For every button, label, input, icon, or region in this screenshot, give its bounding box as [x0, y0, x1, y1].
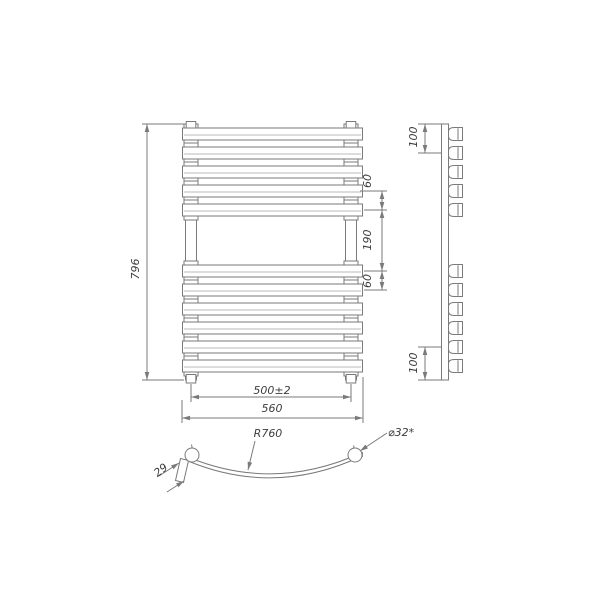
left-collector-section	[185, 448, 199, 462]
dim-label-overall-width: 560	[262, 402, 283, 415]
collector-top-cap	[346, 122, 356, 129]
dim-label-bar-bend-radius: R760	[254, 427, 283, 440]
dim-label-collector-spacing: 500±2	[253, 384, 290, 397]
right-collector-tick	[354, 446, 355, 449]
front-bar	[183, 147, 363, 159]
side-bar-end	[449, 265, 463, 278]
dim-label-middle-gap: 190	[361, 230, 374, 251]
right-collector-section	[348, 448, 362, 462]
side-bar-end	[449, 185, 463, 198]
side-bar-end	[449, 341, 463, 354]
front-bar	[183, 204, 363, 216]
collector-bottom-cap	[186, 375, 196, 384]
leader-line-diameter	[360, 433, 387, 451]
dim-label-bar-pitch-bottom: 60	[361, 274, 374, 288]
side-bar-ends	[449, 128, 463, 373]
dim-label-overall-height: 796	[129, 259, 142, 280]
collector-bottom-cap	[346, 375, 356, 384]
side-bar-end	[449, 360, 463, 373]
side-bar-end	[449, 128, 463, 141]
front-bar	[183, 185, 363, 197]
drawing-canvas: 796 60 190 60 500±2 560 100 100	[0, 0, 600, 600]
dim-label-mount-offset-bottom: 100	[407, 353, 420, 374]
towel-bars	[183, 128, 363, 372]
front-bar	[183, 128, 363, 140]
side-bar-end	[449, 303, 463, 316]
dim-label-collector-diameter: ⌀32*	[388, 426, 415, 439]
dim-label-bar-pitch-top: 60	[361, 174, 374, 188]
side-bar-end	[449, 166, 463, 179]
side-bar-end	[449, 204, 463, 217]
dim-label-bar-profile-depth: 29	[151, 461, 170, 480]
bottom-view	[176, 445, 363, 483]
front-view	[183, 122, 363, 384]
left-collector-tick	[192, 445, 193, 449]
curved-bar-outer-edge	[188, 456, 362, 478]
front-bar	[183, 166, 363, 178]
side-collector-profile	[442, 124, 449, 380]
dim-label-mount-offset-top: 100	[407, 127, 420, 148]
drawing-sheet: 796 60 190 60 500±2 560 100 100	[0, 0, 600, 600]
front-bar	[183, 341, 363, 353]
front-bar	[183, 303, 363, 315]
front-bar	[183, 360, 363, 372]
side-view	[442, 124, 463, 380]
collector-nipples	[184, 124, 358, 376]
side-bar-end	[449, 147, 463, 160]
front-bar	[183, 322, 363, 334]
dim-line-29	[167, 481, 184, 492]
front-bar	[183, 284, 363, 296]
side-bar-end	[449, 284, 463, 297]
bar-end-tab	[176, 459, 189, 483]
leader-line-radius	[248, 441, 255, 470]
front-bar	[183, 265, 363, 277]
collector-top-cap	[186, 122, 196, 129]
side-bar-end	[449, 322, 463, 335]
